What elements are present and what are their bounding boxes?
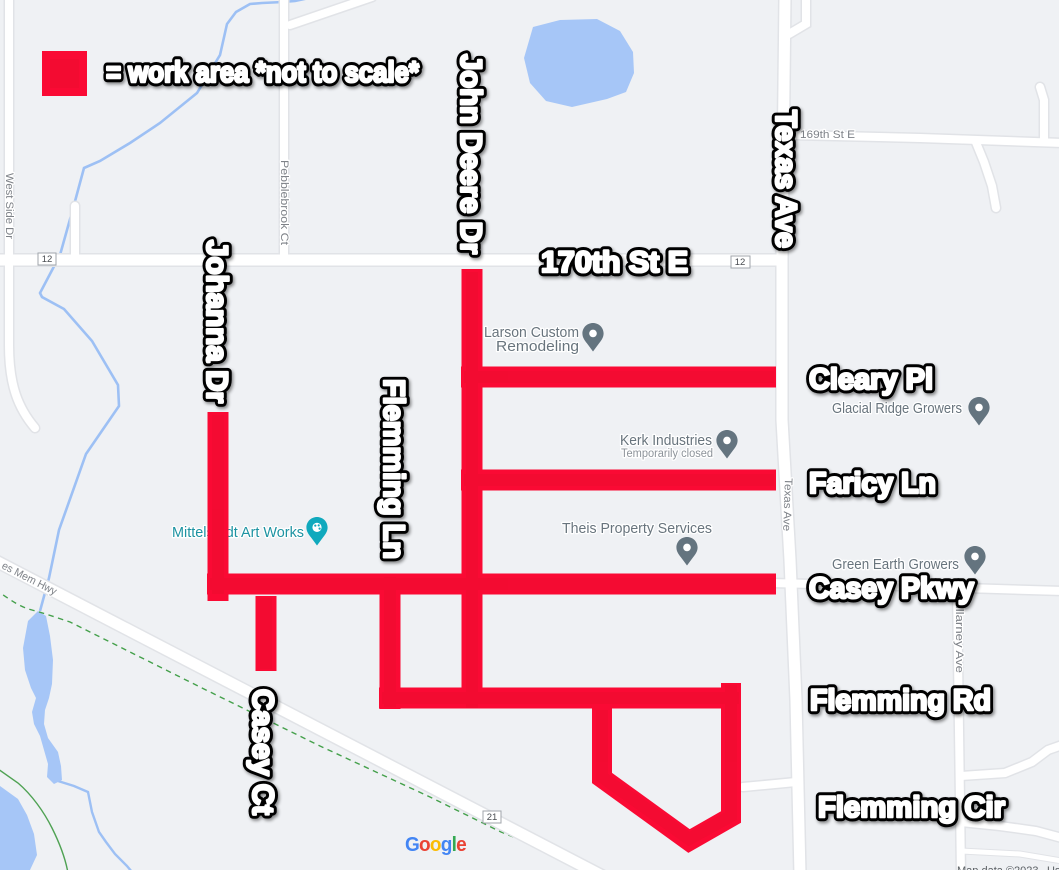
svg-text:Temporarily closed: Temporarily closed — [621, 448, 713, 460]
svg-text:Kerk Industries: Kerk Industries — [620, 433, 712, 449]
svg-text:Texas Ave: Texas Ave — [769, 110, 802, 248]
svg-text:Pebblebrook Ct: Pebblebrook Ct — [278, 160, 290, 245]
svg-text:Map data ©2023: Map data ©2023 — [957, 865, 1039, 870]
svg-text:Mittelstadt Art Works: Mittelstadt Art Works — [172, 525, 304, 541]
svg-text:= work area *not to scale*: = work area *not to scale* — [106, 56, 419, 89]
svg-text:Casey Pkwy: Casey Pkwy — [809, 572, 974, 605]
svg-text:Theis Property Services: Theis Property Services — [562, 521, 712, 537]
svg-text:Cleary Pl: Cleary Pl — [809, 363, 933, 396]
svg-text:Killarney Ave: Killarney Ave — [953, 597, 965, 673]
svg-text:170th St E: 170th St E — [541, 246, 688, 279]
svg-text:Us: Us — [1047, 865, 1059, 870]
svg-text:Green Earth Growers: Green Earth Growers — [832, 557, 959, 573]
svg-text:Texas Ave: Texas Ave — [780, 478, 794, 531]
svg-text:Remodeling: Remodeling — [496, 339, 579, 355]
svg-text:Johanna Dr: Johanna Dr — [200, 240, 233, 403]
svg-text:Faricy Ln: Faricy Ln — [809, 467, 936, 500]
svg-text:Glacial Ridge Growers: Glacial Ridge Growers — [832, 401, 962, 417]
svg-text:169th St E: 169th St E — [800, 129, 855, 141]
svg-text:John Deere Dr: John Deere Dr — [454, 54, 487, 254]
svg-text:Casey Ct: Casey Ct — [246, 689, 279, 815]
svg-text:West Side Dr: West Side Dr — [3, 173, 15, 239]
svg-text:21: 21 — [487, 812, 498, 823]
svg-text:12: 12 — [735, 257, 746, 268]
svg-text:12: 12 — [42, 254, 53, 265]
svg-text:Flemming Ln: Flemming Ln — [377, 379, 410, 559]
svg-text:Google: Google — [405, 834, 467, 856]
svg-text:Flemming Cir: Flemming Cir — [818, 791, 1005, 824]
svg-text:Flemming Rd: Flemming Rd — [810, 684, 991, 717]
